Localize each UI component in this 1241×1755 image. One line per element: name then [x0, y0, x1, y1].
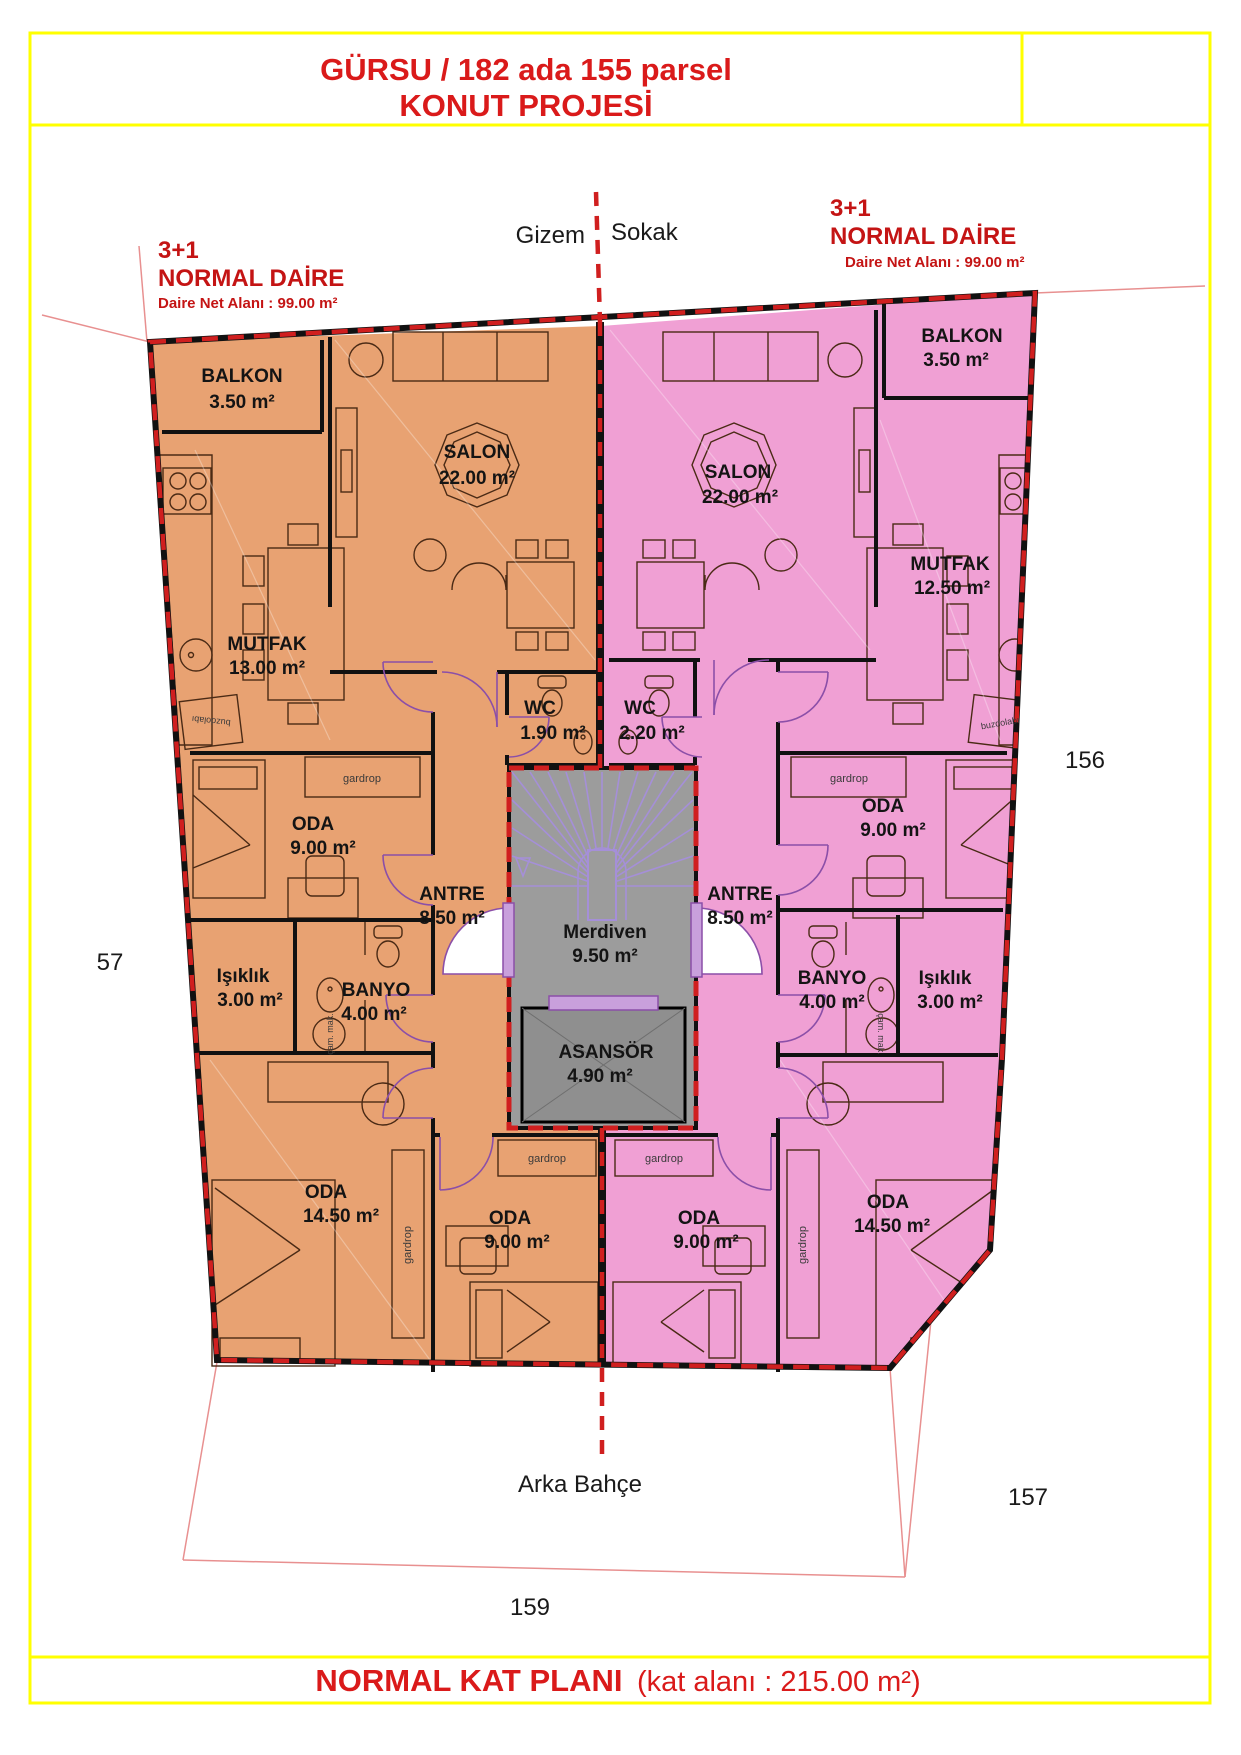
room-label: ODA [305, 1182, 348, 1203]
room-label: BANYO [342, 980, 411, 1001]
room-label: BALKON [921, 326, 1002, 347]
room-area: 4.90 m² [567, 1066, 632, 1087]
washing-machine-label: çam. mak. [876, 1013, 886, 1055]
washing-machine-label: çam. mak. [325, 1013, 335, 1055]
right-apt-name: NORMAL DAİRE [830, 223, 1016, 250]
room-area: 13.00 m² [229, 658, 305, 679]
room-area: 3.00 m² [217, 990, 282, 1011]
room-label: ODA [489, 1208, 532, 1229]
room-label: ASANSÖR [558, 1042, 653, 1063]
left-apt-type: 3+1 [158, 237, 199, 264]
room-label: WC [524, 698, 556, 719]
room-area: 9.00 m² [290, 838, 355, 859]
room-area: 8.50 m² [419, 908, 484, 929]
footer-plan-area: (kat alanı : 215.00 m²) [637, 1666, 921, 1698]
wardrobe-label: gardrop [402, 1226, 414, 1264]
room-area: 3.50 m² [923, 350, 988, 371]
room-area: 14.50 m² [303, 1206, 379, 1227]
street-label-word2: Sokak [611, 219, 679, 246]
room-label: ODA [862, 796, 905, 817]
room-label: ODA [867, 1192, 910, 1213]
room-area: 3.50 m² [209, 392, 274, 413]
elevator-door [549, 996, 658, 1010]
wardrobe-label: gardrop [645, 1153, 683, 1165]
wardrobe-label: gardrop [528, 1153, 566, 1165]
room-area: 9.00 m² [673, 1232, 738, 1253]
floor-plan-page: GÜRSU / 182 ada 155 parsel KONUT PROJESİ… [0, 0, 1241, 1755]
dimension-right: 156 [1065, 747, 1105, 774]
room-label: SALON [705, 462, 772, 483]
right-apt-type: 3+1 [830, 195, 871, 222]
room-area: 8.50 m² [707, 908, 772, 929]
right-apartment-header: 3+1 NORMAL DAİRE Daire Net Alanı : 99.00… [830, 195, 1025, 271]
room-area: 22.00 m² [439, 468, 515, 489]
footer-plan-title: NORMAL KAT PLANI (kat alanı : 215.00 m²) [315, 1663, 920, 1698]
room-label: ANTRE [419, 884, 484, 905]
room-label: Işıklık [217, 966, 270, 987]
page-title-line1: GÜRSU / 182 ada 155 parsel [320, 52, 732, 87]
floor-plan-drawing: GÜRSU / 182 ada 155 parsel KONUT PROJESİ… [0, 0, 1241, 1755]
room-label: BALKON [201, 366, 282, 387]
left-apartment-header: 3+1 NORMAL DAİRE Daire Net Alanı : 99.00… [158, 237, 344, 312]
street-label-word1: Gizem [516, 222, 585, 249]
wardrobe-label: gardrop [830, 773, 868, 785]
footer-plan-name: NORMAL KAT PLANI [315, 1663, 622, 1698]
room-label: WC [624, 698, 656, 719]
wardrobe-label: gardrop [797, 1226, 809, 1264]
room-area: 4.00 m² [799, 992, 864, 1013]
room-label: MUTFAK [910, 554, 989, 575]
room-label: ODA [292, 814, 335, 835]
wardrobe-label: gardrop [343, 773, 381, 785]
right-apt-net-area: Daire Net Alanı : 99.00 m² [845, 254, 1025, 271]
room-area: 9.00 m² [860, 820, 925, 841]
room-area: 3.00 m² [917, 992, 982, 1013]
dimension-left: 57 [97, 949, 124, 976]
dimension-bottom-right: 157 [1008, 1484, 1048, 1511]
left-apt-net-area: Daire Net Alanı : 99.00 m² [158, 295, 338, 312]
page-title-line2: KONUT PROJESİ [399, 88, 652, 123]
room-area: 2.20 m² [619, 723, 684, 744]
room-label: Merdiven [563, 922, 646, 943]
room-area: 12.50 m² [914, 578, 990, 599]
left-apt-name: NORMAL DAİRE [158, 265, 344, 292]
room-area: 9.50 m² [572, 946, 637, 967]
room-area: 9.00 m² [484, 1232, 549, 1253]
room-label: ANTRE [707, 884, 772, 905]
garden-label: Arka Bahçe [518, 1471, 642, 1498]
room-area: 22.00 m² [702, 487, 778, 508]
room-area: 1.90 m² [520, 723, 585, 744]
room-label: MUTFAK [227, 634, 306, 655]
dimension-bottom: 159 [510, 1594, 550, 1621]
room-label: ODA [678, 1208, 721, 1229]
room-label: SALON [444, 442, 511, 463]
room-label: Işıklık [919, 968, 972, 989]
room-area: 14.50 m² [854, 1216, 930, 1237]
room-label: BANYO [798, 968, 867, 989]
room-area: 4.00 m² [341, 1004, 406, 1025]
